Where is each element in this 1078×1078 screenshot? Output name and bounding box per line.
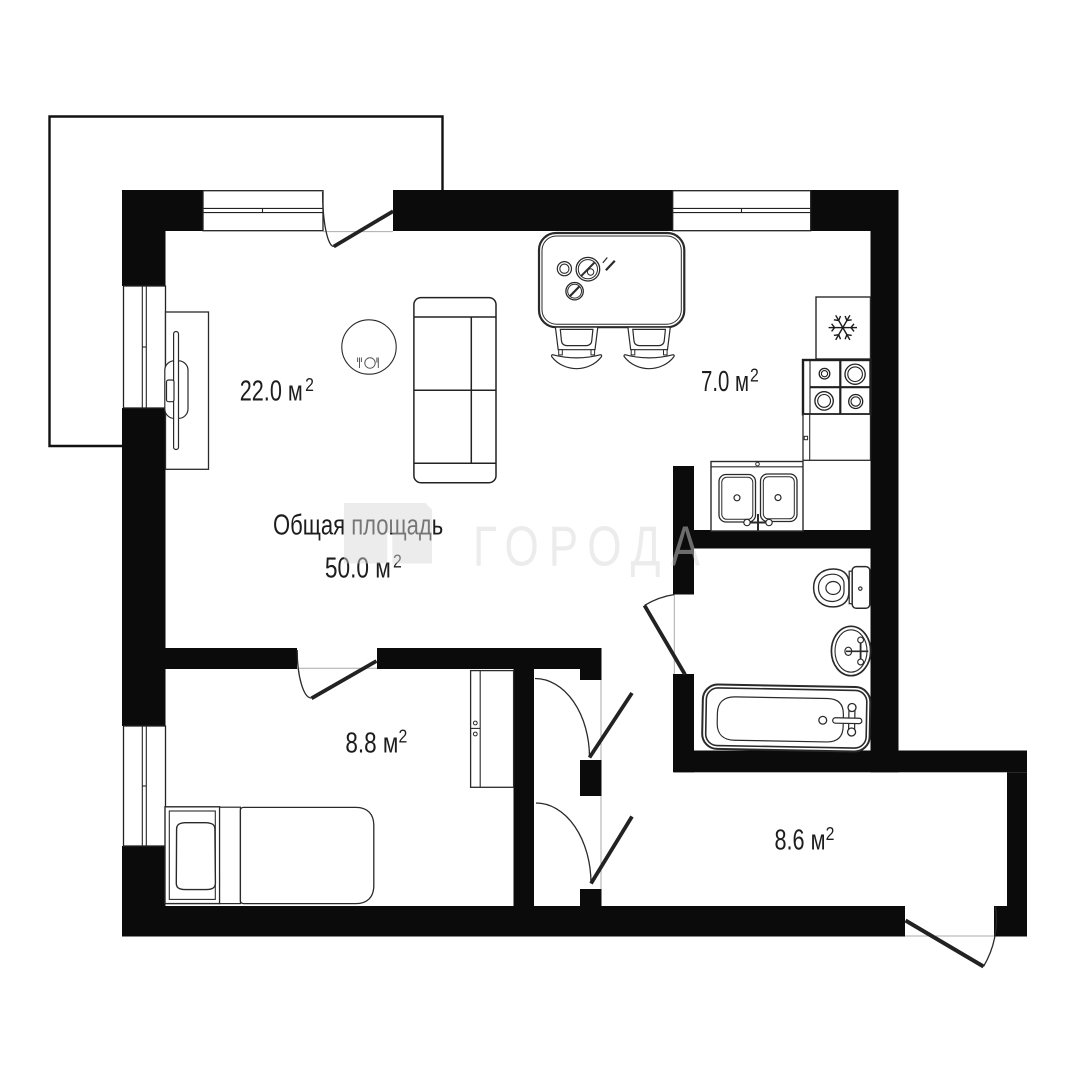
svg-text:2: 2 — [826, 823, 835, 844]
svg-text:2: 2 — [305, 374, 314, 395]
svg-text:2: 2 — [399, 726, 408, 747]
svg-text:7.0 м: 7.0 м — [701, 366, 749, 398]
svg-text:8.6 м: 8.6 м — [775, 825, 826, 857]
svg-text:8.8 м: 8.8 м — [345, 727, 398, 759]
svg-text:22.0 м: 22.0 м — [240, 376, 303, 408]
svg-text:2: 2 — [750, 364, 759, 385]
